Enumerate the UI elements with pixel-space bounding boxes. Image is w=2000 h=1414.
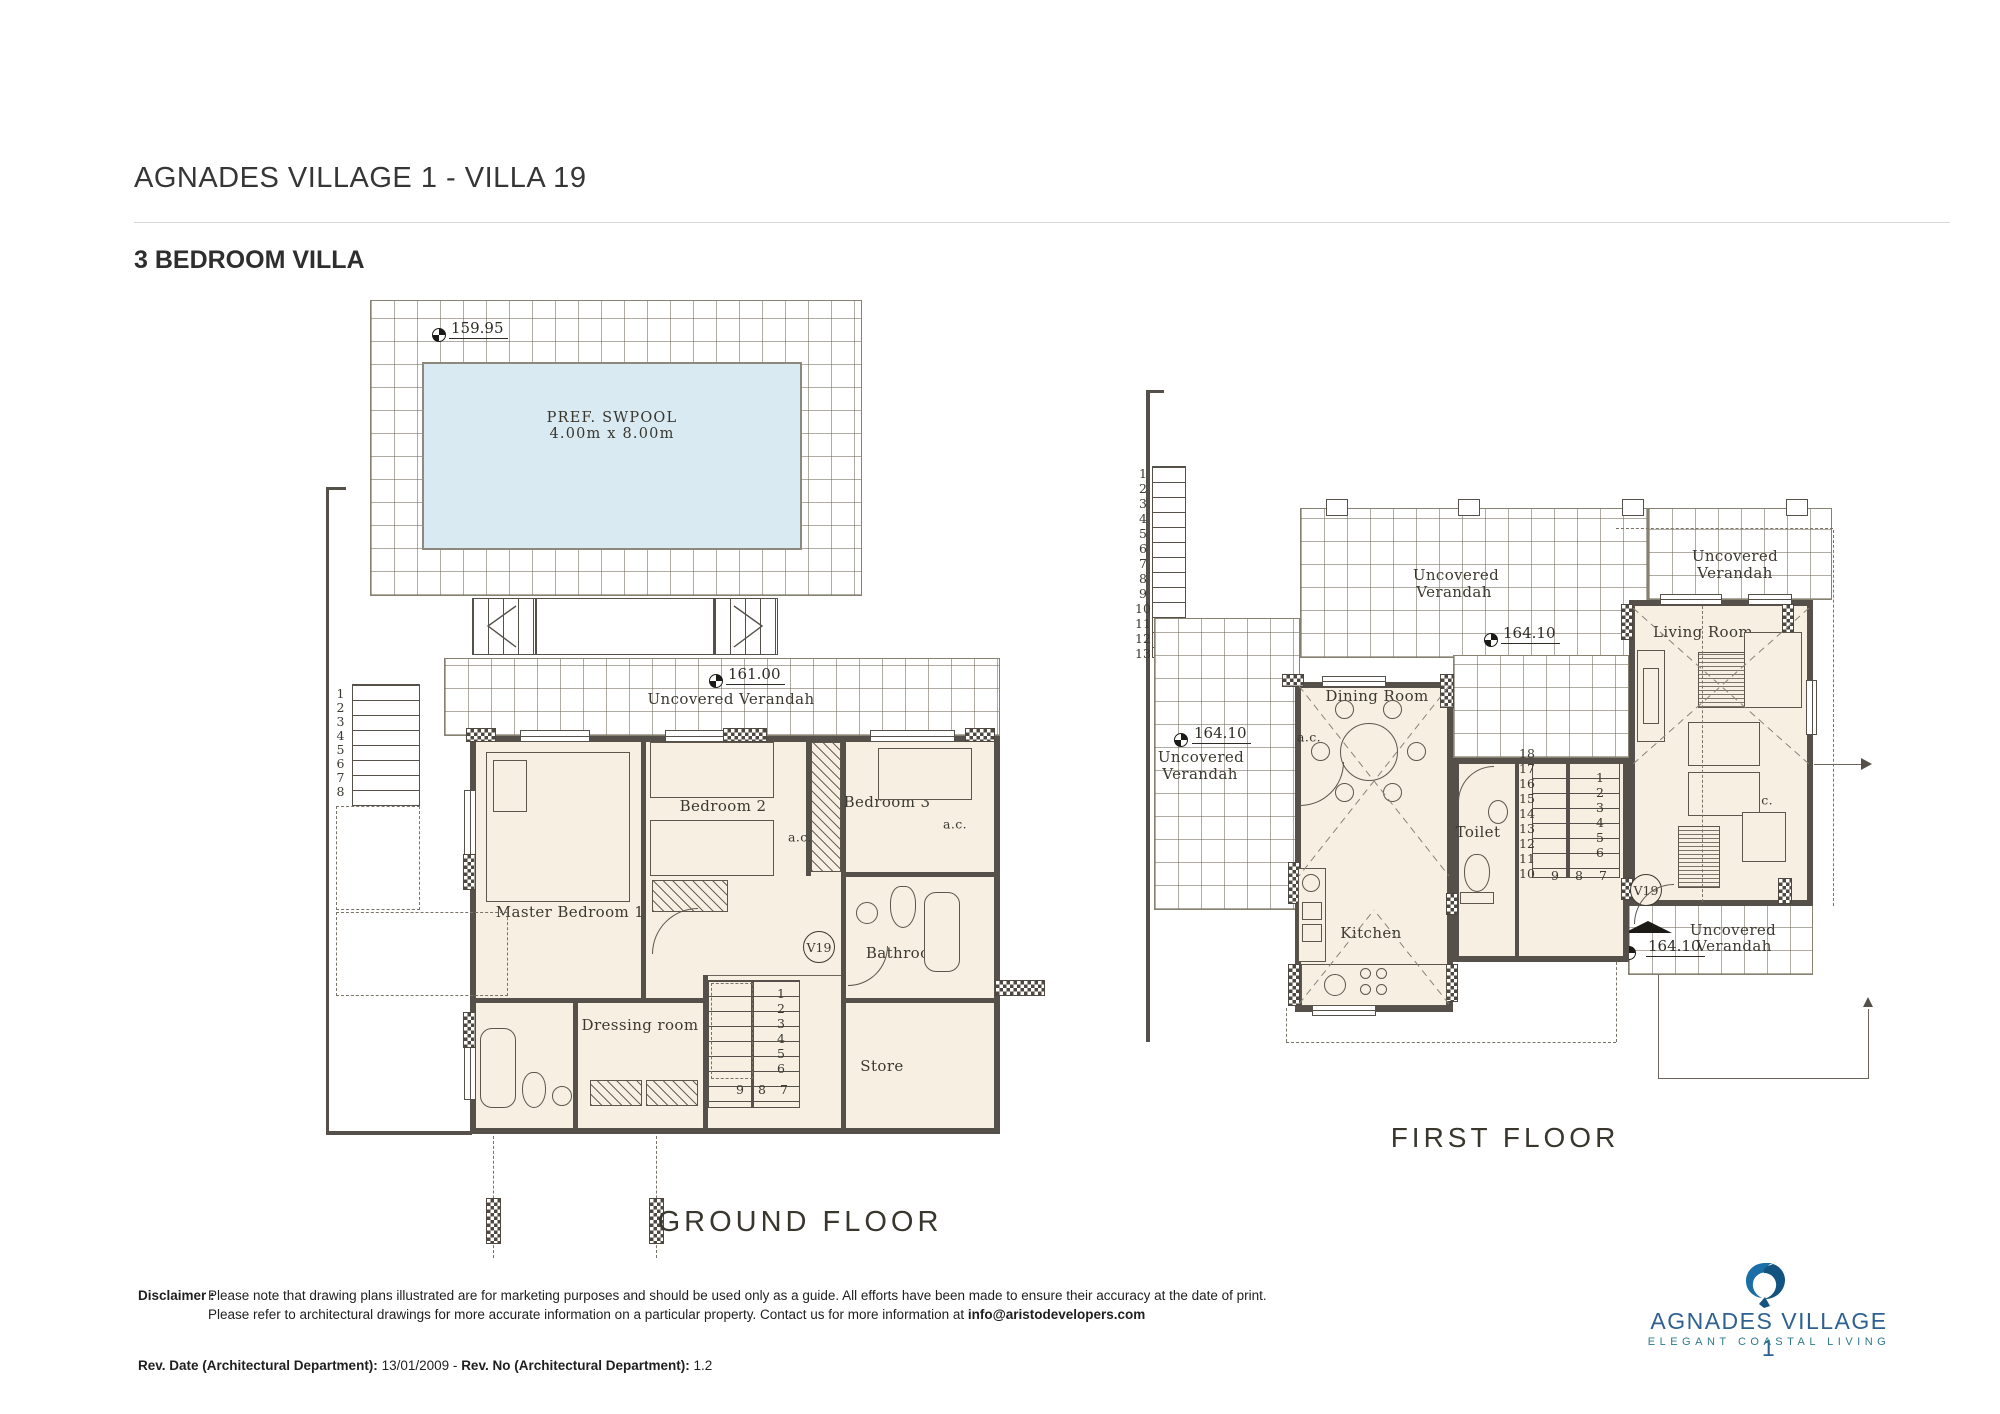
rev-separator: - [453, 1358, 458, 1373]
stair-number: 6 [777, 1061, 785, 1076]
pergola-column [1622, 499, 1644, 516]
toilet-icon [890, 886, 916, 928]
bed-icon [650, 820, 774, 876]
stair-number: 8 [1139, 571, 1147, 586]
logo-tagline: ELEGANT COASTAL LIVING [1644, 1336, 1894, 1348]
wardrobe-icon [590, 1080, 642, 1106]
stair-numbers: 12345678 [332, 687, 349, 799]
wardrobe-icon [646, 1080, 698, 1106]
boundary-wall [326, 1131, 472, 1135]
room-label-store: Store [860, 1057, 903, 1075]
verandah-label: Verandah [1416, 583, 1492, 601]
ground-verandah-level: 161.00 [726, 665, 785, 685]
external-stair [352, 684, 420, 806]
brand-logo: AGNADES VILLAGE 1 ELEGANT COASTAL LIVING [1644, 1256, 1894, 1356]
disclaimer-line2: Please refer to architectural drawings f… [208, 1307, 968, 1322]
stair-number: 8 [758, 1082, 766, 1097]
column-post [486, 1198, 501, 1244]
level-marker-icon [1174, 733, 1188, 747]
verandah-tiles-top [1453, 655, 1629, 758]
page-title: AGNADES VILLAGE 1 - VILLA 19 [134, 162, 586, 195]
verandah-level: 164.10 [1501, 624, 1560, 644]
toilet-tank-icon [1460, 892, 1494, 904]
rev-no-value: 1.2 [694, 1358, 713, 1373]
ground-verandah-label: Uncovered Verandah [647, 690, 814, 708]
pergola-column [1786, 499, 1808, 516]
wall-pier [466, 728, 496, 742]
stair-numbers: 12345678910111213 [1134, 466, 1152, 661]
stair-number: 14 [1519, 806, 1535, 821]
floorplan-sheet: AGNADES VILLAGE 1 - VILLA 19 3 BEDROOM V… [0, 0, 2000, 1414]
stair-number: 10 [1519, 866, 1535, 881]
toilet-icon [1464, 854, 1490, 892]
line [1374, 910, 1449, 1004]
first-floor-caption: FIRST FLOOR [1385, 1122, 1625, 1154]
wall-pier [723, 728, 767, 742]
verandah-label: Uncovered [1413, 566, 1499, 584]
revision-line: Rev. Date (Architectural Department): 13… [138, 1356, 712, 1375]
polyline [488, 606, 516, 647]
stair-number: 1 [1596, 770, 1604, 785]
stair-number: 1 [1139, 466, 1147, 481]
step-arrow-icon [714, 598, 778, 655]
bed-icon [650, 742, 774, 798]
room-label-toilet: Toilet [1456, 823, 1501, 841]
rev-no-label: Rev. No (Architectural Department): [461, 1358, 690, 1373]
stair-numbers: 123456 [1592, 770, 1608, 860]
pergola-column [1326, 499, 1348, 516]
line [1299, 910, 1374, 1004]
stair-number: 9 [1551, 868, 1559, 883]
armchair-icon [1742, 812, 1786, 862]
window-icon [1660, 594, 1722, 605]
stair-number: 5 [777, 1046, 785, 1061]
shell-logo-icon [1744, 1262, 1786, 1308]
circle [1761, 1277, 1770, 1286]
window-icon [464, 1040, 476, 1100]
stair-number: 12 [1135, 631, 1151, 646]
stair-number: 3 [337, 715, 345, 729]
window-icon [870, 730, 955, 742]
pool-size-label: 4.00m x 8.00m [549, 426, 674, 442]
stair-number: 5 [1139, 526, 1147, 541]
stair-number: 6 [1596, 845, 1604, 860]
path [1764, 1264, 1785, 1299]
stair-number: 2 [1139, 481, 1147, 496]
stair-number: 18 [1519, 746, 1535, 761]
stair-number: 3 [777, 1016, 785, 1031]
stair-numbers: 987 [736, 1082, 788, 1097]
stair-dashed-flight [336, 806, 420, 910]
rev-date-value: 13/01/2009 [382, 1358, 450, 1373]
room-label-dressing: Dressing room [582, 1016, 699, 1034]
disclaimer-label: Disclaimer : [138, 1286, 215, 1305]
stair-number: 2 [1596, 785, 1604, 800]
window-icon [464, 790, 476, 860]
arrow-icon [1863, 997, 1873, 1007]
logo-name: AGNADES VILLAGE 1 [1644, 1308, 1894, 1362]
stair-number: 8 [337, 785, 345, 799]
verandah-label: Uncovered [1692, 547, 1778, 565]
stair-number: 1 [777, 986, 785, 1001]
wall-segment [573, 1003, 578, 1128]
stair-number: 3 [1596, 800, 1604, 815]
verandah-label: Verandah [1162, 765, 1238, 783]
stair-number: 9 [1139, 586, 1147, 601]
plot-line [1658, 975, 1659, 1079]
stair-numbers: 123456 [772, 986, 790, 1076]
stair-number: 4 [777, 1031, 785, 1046]
stair-number: 11 [1519, 851, 1535, 866]
stair-number: 3 [1139, 496, 1147, 511]
room-label-master: Master Bedroom 1 [496, 903, 645, 921]
closet-icon [652, 880, 728, 912]
rev-date-label: Rev. Date (Architectural Department): [138, 1358, 378, 1373]
stair-number: 7 [1599, 868, 1607, 883]
basin-icon [1488, 800, 1508, 824]
ceiling-dash-lines [1299, 880, 1449, 1004]
stair-dashed-landing [336, 912, 508, 996]
bed-icon [878, 748, 972, 800]
bathtub-icon [924, 892, 960, 972]
wall-segment [846, 998, 994, 1003]
pool-level: 159.95 [449, 319, 508, 339]
boundary-wall [326, 489, 329, 1134]
stair-number: 9 [736, 1082, 744, 1097]
pillow-icon [493, 760, 527, 812]
roof-outline-dashed [1286, 1008, 1287, 1042]
stair-number: 12 [1519, 836, 1535, 851]
stair-number: 13 [1519, 821, 1535, 836]
wall-pier [1621, 604, 1633, 640]
stair-number: 16 [1519, 776, 1535, 791]
plot-line [1868, 1009, 1869, 1079]
page-subtitle: 3 BEDROOM VILLA [134, 246, 365, 275]
ac-label: a.c. [943, 817, 967, 832]
boundary-wall [326, 487, 346, 490]
swimming-pool [422, 362, 802, 550]
pool-steps-landing [536, 598, 714, 655]
verandah-label: Verandah [1697, 564, 1773, 582]
ac-label: a.c. [788, 830, 812, 845]
stair-number: 4 [1596, 815, 1604, 830]
basin-icon [856, 902, 878, 924]
stair-number: 6 [337, 757, 345, 771]
stair-number: 4 [337, 729, 345, 743]
wall-segment [476, 998, 705, 1003]
header-divider [134, 222, 1950, 223]
ground-floor-caption: GROUND FLOOR [650, 1206, 950, 1239]
roof-outline-dashed [1616, 962, 1617, 1042]
stair-number: 15 [1519, 791, 1535, 806]
roof-outline-dashed [1286, 1042, 1616, 1043]
plot-line [1658, 1078, 1868, 1079]
stair-number: 5 [1596, 830, 1604, 845]
arrow-icon [1861, 758, 1872, 770]
wall-segment [641, 742, 646, 1000]
stair-landing-line [708, 975, 841, 976]
verandah-label: Uncovered [1158, 748, 1244, 766]
level-marker-icon [709, 674, 723, 688]
stair-number: 10 [1135, 601, 1151, 616]
verandah-level: 164.10 [1192, 724, 1251, 744]
stair-number: 4 [1139, 511, 1147, 526]
disclaimer: Disclaimer : Please note that drawing pl… [138, 1286, 1388, 1324]
disclaimer-line1: Please note that drawing plans illustrat… [208, 1288, 1267, 1303]
wall-pier [463, 1012, 476, 1048]
stair-number: 7 [337, 771, 345, 785]
wall-pier [995, 980, 1045, 996]
stair-number: 2 [337, 701, 345, 715]
wall-pier [463, 854, 476, 890]
stair-number: 13 [1135, 646, 1151, 661]
room-label-bedroom2: Bedroom 2 [680, 797, 767, 815]
villa-badge: V19 [803, 931, 835, 963]
verandah-label: Verandah [1696, 937, 1772, 955]
disclaimer-email: info@aristodevelopers.com [968, 1307, 1145, 1322]
basin-icon [552, 1086, 572, 1106]
boundary-wall [1146, 390, 1164, 393]
bathtub-icon [480, 1028, 516, 1108]
wall-pier [1778, 878, 1792, 904]
stair-number: 5 [337, 743, 345, 757]
step-arrow-icon [472, 598, 536, 655]
stair-number: 17 [1519, 761, 1535, 776]
roof-outline-dashed [1616, 528, 1833, 529]
stair-number: 1 [337, 687, 345, 701]
stair-number: 7 [780, 1082, 788, 1097]
ceiling-dash-lines [1299, 686, 1449, 876]
pergola-column [1458, 499, 1480, 516]
stair-numbers: 987 [1551, 868, 1607, 883]
level-marker-icon [1484, 633, 1498, 647]
closet-icon [811, 742, 841, 872]
stair-rail [1566, 762, 1570, 878]
window-icon [1312, 1005, 1376, 1016]
roof-outline-dashed [1833, 530, 1834, 906]
stair-numbers: 181716151413121110 [1517, 746, 1537, 881]
rug-icon [1678, 826, 1720, 888]
pool-label: PREF. SWPOOL [547, 410, 678, 426]
ceiling-dash-lines [1633, 608, 1809, 764]
stair-number: 6 [1139, 541, 1147, 556]
polyline [734, 606, 762, 647]
toilet-icon [522, 1072, 546, 1108]
drain-line [1814, 764, 1864, 765]
stair-number: 7 [1139, 556, 1147, 571]
wall-pier [965, 728, 995, 742]
stair-upper-flight-dashed [711, 983, 753, 1079]
stair-number: 8 [1575, 868, 1583, 883]
level-marker-icon [432, 328, 446, 342]
wall-segment [846, 872, 994, 877]
stair-number: 2 [777, 1001, 785, 1016]
window-icon [520, 730, 590, 742]
coffee-table-icon [1688, 772, 1760, 816]
stair-number: 11 [1135, 616, 1151, 631]
ceiling-dash-line [1702, 606, 1703, 902]
